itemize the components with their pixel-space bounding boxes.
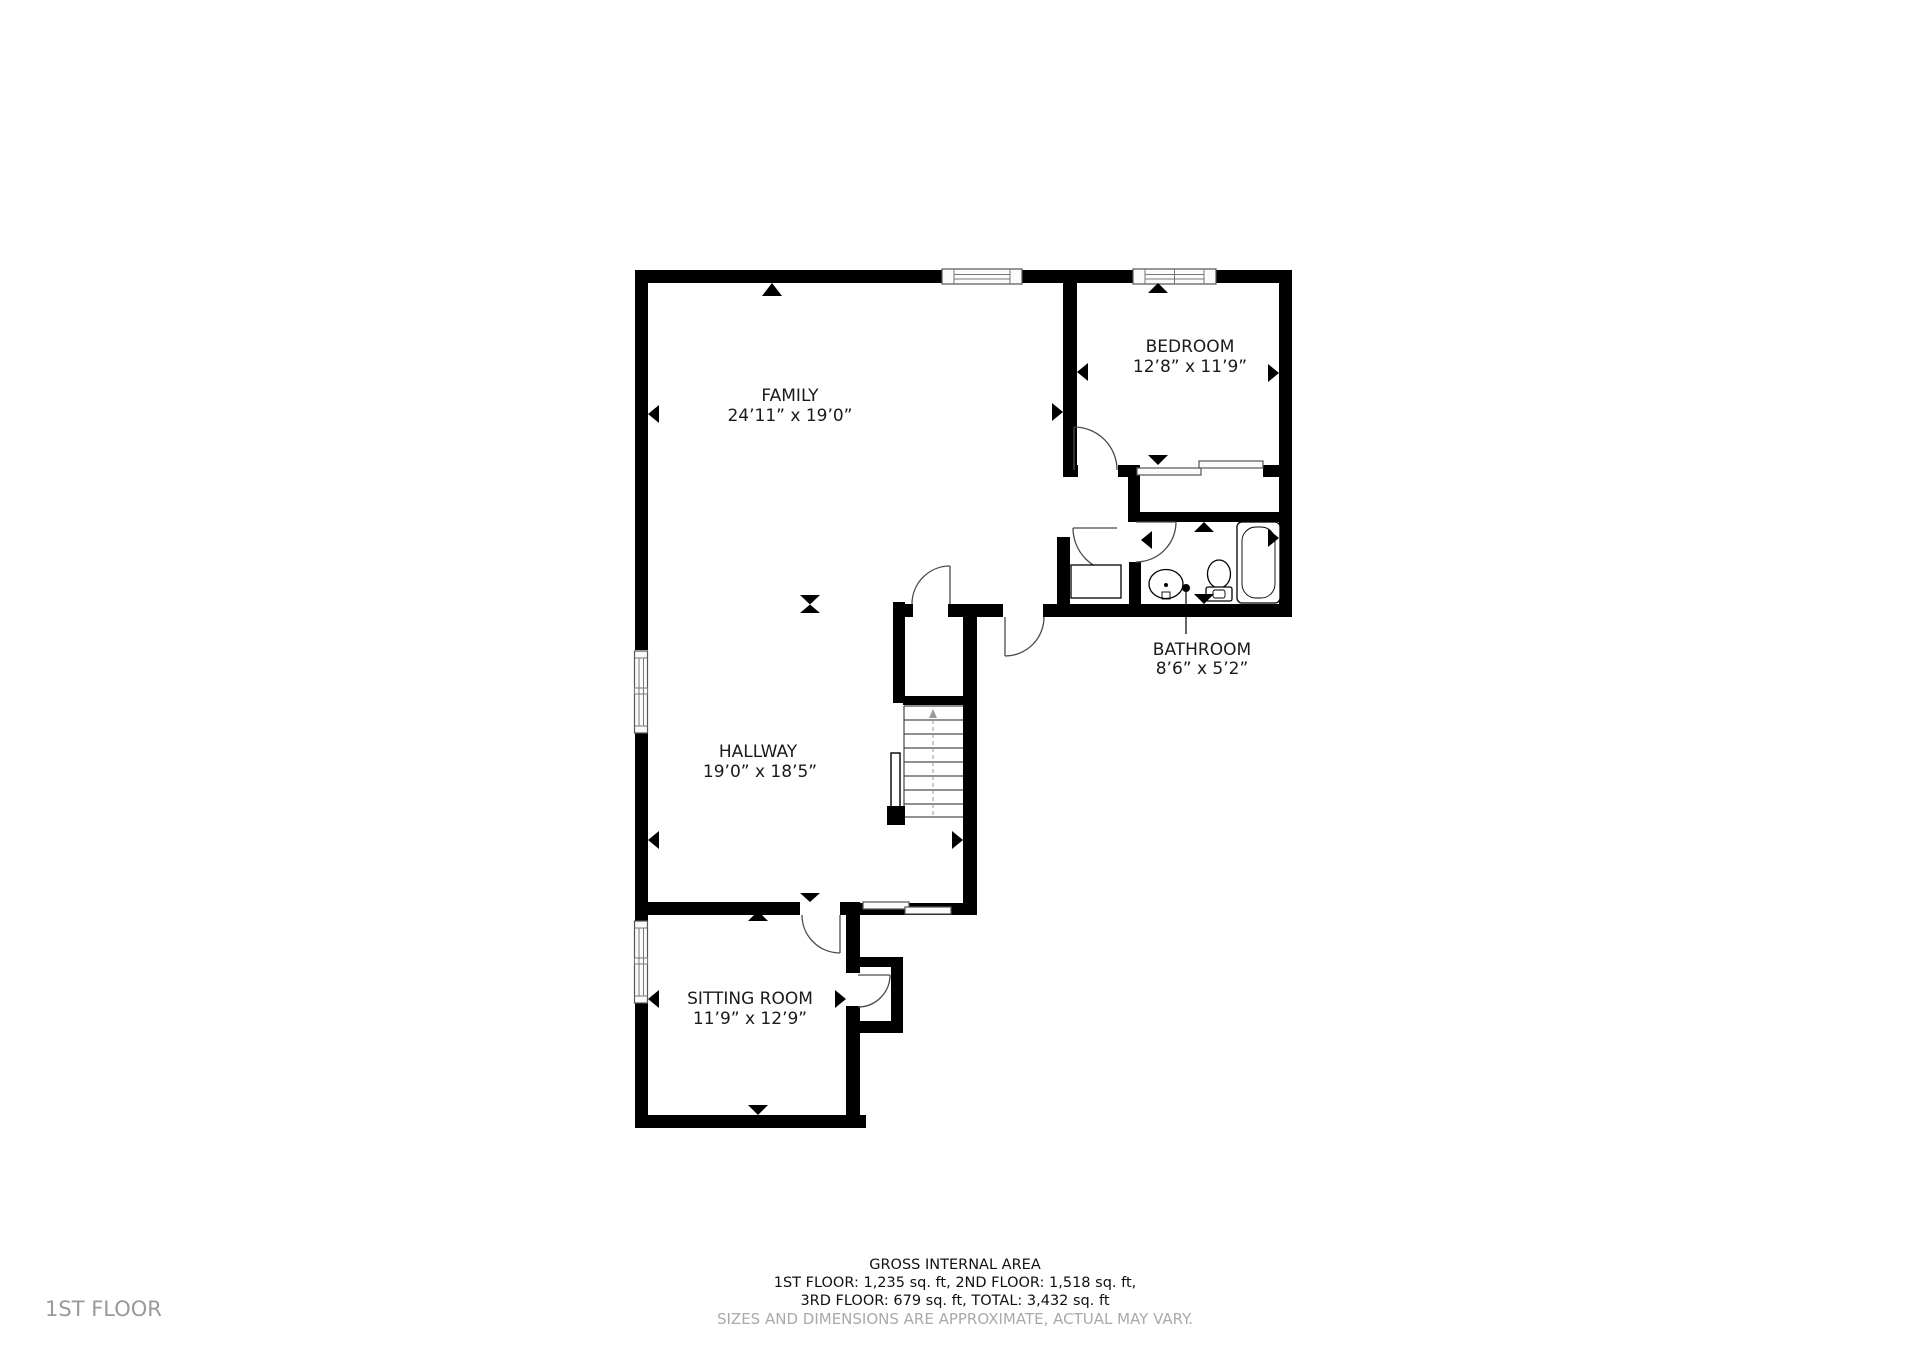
wall-left [635,270,648,650]
sink-icon [1149,570,1183,600]
room-dims-sitting-room: 11’9” x 12’9” [693,1009,807,1029]
footer-areas-line2: 3RD FLOOR: 679 sq. ft, TOTAL: 3,432 sq. … [800,1293,1109,1309]
room-dims-bathroom: 8’6” x 5’2” [1156,659,1249,679]
arrow-down-icon [1148,455,1168,465]
arrow-left-icon [1077,363,1088,381]
footer-areas-line1: 1ST FLOOR: 1,235 sq. ft, 2ND FLOOR: 1,51… [774,1275,1137,1291]
wall-south-upper [1043,604,1292,617]
arrow-right-icon [1052,403,1063,421]
arrow-left-icon [648,405,659,423]
wall-top [1022,270,1133,283]
room-dims-family: 24’11” x 19’0” [727,406,852,426]
staircase [887,706,963,825]
nook-cabinet [1071,565,1121,598]
wall-left [635,1003,648,1128]
arrow-left-icon [648,831,659,849]
wall-sitting-top [635,902,800,915]
wall-bedroom-bottom [1263,465,1292,477]
wall-bedroom-bottom [1063,465,1078,477]
arrow-down-icon [800,893,820,902]
room-label-family: FAMILY [761,386,819,406]
arrow-up-icon [762,283,782,296]
footer-gross-area-title: GROSS INTERNAL AREA [869,1257,1041,1273]
wall-nook-left [1057,537,1070,604]
arrow-right-icon [1268,364,1279,382]
wall-stair-left [893,602,905,703]
wall-closet2-bottom [846,1021,903,1033]
stairs-handrail [891,753,900,810]
wall-family-bedroom [1063,283,1077,470]
wall-bathroom-top [1128,512,1292,522]
footer-disclaimer: SIZES AND DIMENSIONS ARE APPROXIMATE, AC… [717,1310,1193,1328]
sliding-door-bedroom-closet [1137,461,1263,475]
door-stairs [912,566,950,604]
stairs-up-arrow-icon [929,709,937,718]
wall-stair-top [903,696,963,705]
arrow-right-icon [835,990,846,1008]
window-bedroom-top [1133,269,1216,284]
room-label-sitting-room: SITTING ROOM [687,989,813,1009]
floor-plan-canvas: FAMILY 24’11” x 19’0” BEDROOM 12’8” x 11… [0,0,1920,1358]
window-hallway-left [635,651,648,733]
wall-sitting-top [840,902,860,915]
wall-sitting-bottom [635,1115,866,1128]
arrow-down-icon [748,1105,768,1115]
floor-plan-svg: FAMILY 24’11” x 19’0” BEDROOM 12’8” x 11… [0,0,1920,1358]
wall-bathroom-left [1129,562,1141,604]
door-closet [858,975,890,1007]
window-sitting-left [635,921,648,1003]
wall-stair-right [963,604,977,915]
arrow-up-icon [800,605,820,614]
door-bedroom [1074,427,1117,470]
window-family-top [942,269,1022,284]
room-label-hallway: HALLWAY [719,742,798,762]
wall-right [1279,270,1292,617]
arrow-right-icon [952,831,963,849]
arrow-left-icon [1141,531,1152,549]
arrow-down-icon [800,595,820,605]
arrow-left-icon [648,990,659,1008]
door-corridor [1005,617,1044,656]
arrow-up-icon [1194,522,1214,532]
room-dims-hallway: 19’0” x 18’5” [703,762,817,782]
room-label-bedroom: BEDROOM [1146,337,1235,357]
stairs-newel-post [887,806,905,825]
door-bathroom [1136,522,1176,562]
room-dims-bedroom: 12’8” x 11’9” [1133,357,1247,377]
floor-name-label: 1ST FLOOR [45,1297,162,1321]
wall-top [635,270,942,283]
door-sitting-room [802,915,840,953]
wall-left [635,732,648,921]
room-label-bathroom: BATHROOM [1153,640,1251,660]
